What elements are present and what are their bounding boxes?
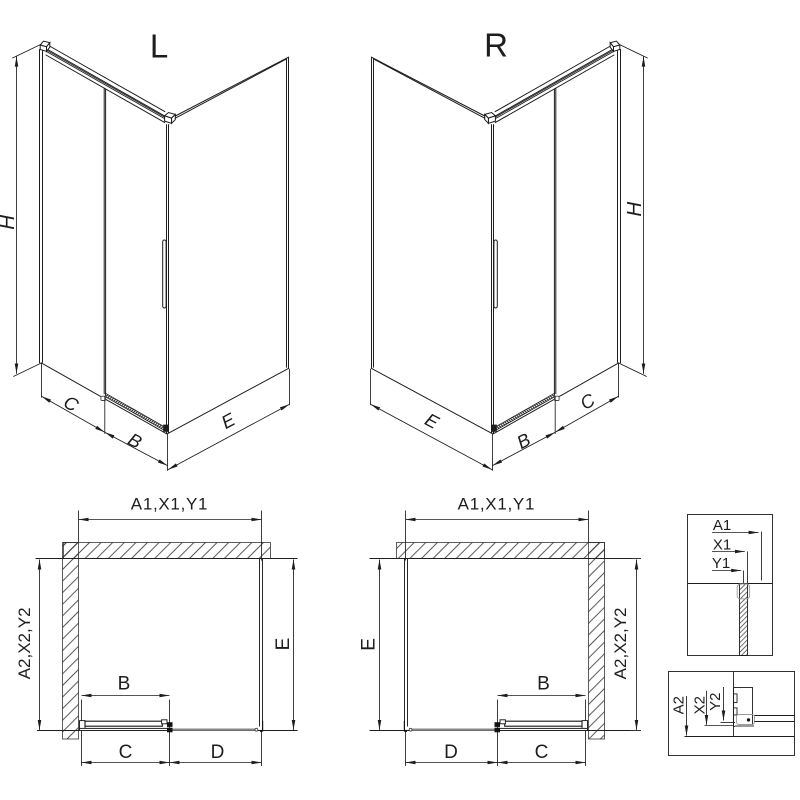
svg-text:H: H bbox=[623, 202, 646, 217]
svg-text:B: B bbox=[513, 429, 534, 453]
svg-text:C: C bbox=[535, 742, 549, 763]
svg-text:A1,X1,Y1: A1,X1,Y1 bbox=[458, 494, 535, 513]
svg-text:A2,X2,Y2: A2,X2,Y2 bbox=[611, 607, 630, 679]
svg-text:B: B bbox=[118, 674, 131, 695]
svg-text:E: E bbox=[358, 638, 379, 651]
svg-text:B: B bbox=[125, 428, 146, 452]
svg-text:A2: A2 bbox=[670, 696, 687, 714]
svg-text:B: B bbox=[537, 674, 550, 695]
svg-text:Y1: Y1 bbox=[712, 555, 730, 572]
svg-text:A2,X2,Y2: A2,X2,Y2 bbox=[15, 607, 34, 679]
svg-text:X1: X1 bbox=[713, 536, 731, 553]
svg-text:C: C bbox=[119, 742, 133, 763]
svg-text:H: H bbox=[0, 215, 19, 230]
svg-text:E: E bbox=[218, 408, 239, 433]
svg-text:A1,X1,Y1: A1,X1,Y1 bbox=[131, 494, 208, 513]
svg-text:R: R bbox=[484, 27, 508, 64]
svg-text:E: E bbox=[422, 409, 443, 434]
svg-text:D: D bbox=[444, 742, 458, 763]
svg-text:A1: A1 bbox=[713, 517, 731, 534]
svg-text:C: C bbox=[576, 389, 599, 414]
svg-text:C: C bbox=[60, 391, 83, 416]
svg-text:L: L bbox=[150, 28, 168, 65]
svg-text:D: D bbox=[211, 742, 225, 763]
svg-text:X2: X2 bbox=[691, 696, 708, 714]
svg-text:Y2: Y2 bbox=[707, 693, 724, 711]
svg-text:E: E bbox=[273, 638, 294, 651]
